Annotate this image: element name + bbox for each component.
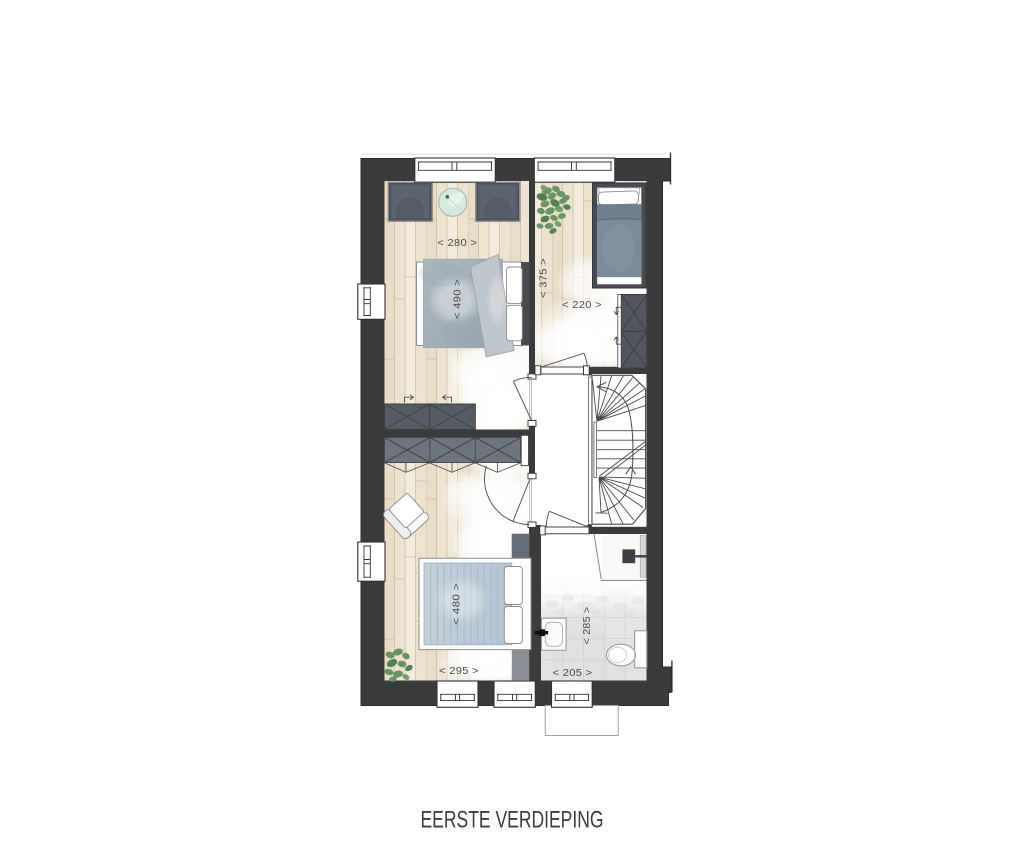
svg-text:< 295 >: < 295 > bbox=[439, 666, 479, 677]
svg-text:< 480 >: < 480 > bbox=[452, 583, 463, 625]
svg-text:EERSTE VERDIEPING: EERSTE VERDIEPING bbox=[421, 807, 604, 834]
svg-text:< 375 >: < 375 > bbox=[539, 258, 550, 298]
svg-text:< 285 >: < 285 > bbox=[582, 607, 593, 645]
svg-text:< 490 >: < 490 > bbox=[453, 279, 464, 319]
svg-text:< 220 >: < 220 > bbox=[562, 300, 602, 311]
svg-text:< 280 >: < 280 > bbox=[437, 238, 477, 249]
svg-text:< 205 >: < 205 > bbox=[553, 668, 593, 679]
